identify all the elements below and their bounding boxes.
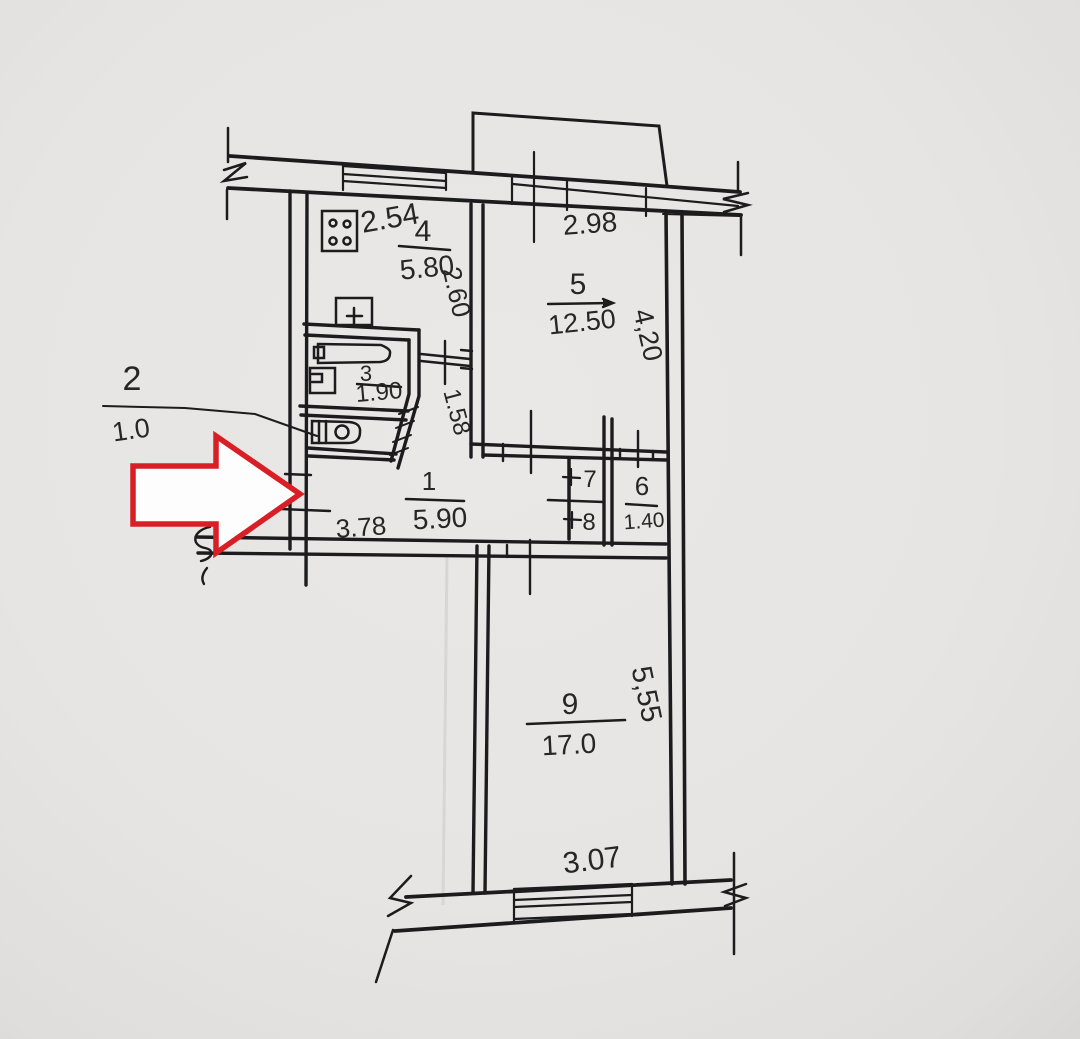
svg-text:4: 4 <box>415 215 432 248</box>
svg-text:1: 1 <box>422 466 436 496</box>
svg-text:5: 5 <box>570 268 587 301</box>
svg-text:7: 7 <box>583 466 596 493</box>
svg-text:9: 9 <box>562 688 579 721</box>
svg-text:17.0: 17.0 <box>541 728 597 762</box>
svg-text:1.0: 1.0 <box>110 413 151 448</box>
svg-text:5.90: 5.90 <box>412 502 468 536</box>
svg-text:1.40: 1.40 <box>623 509 665 535</box>
svg-text:3.78: 3.78 <box>335 510 388 543</box>
svg-text:1.90: 1.90 <box>355 377 404 408</box>
svg-text:3.07: 3.07 <box>561 841 623 881</box>
svg-text:2.98: 2.98 <box>562 206 619 241</box>
svg-text:8: 8 <box>582 509 595 536</box>
svg-text:6: 6 <box>635 471 649 501</box>
svg-text:2: 2 <box>123 360 142 398</box>
